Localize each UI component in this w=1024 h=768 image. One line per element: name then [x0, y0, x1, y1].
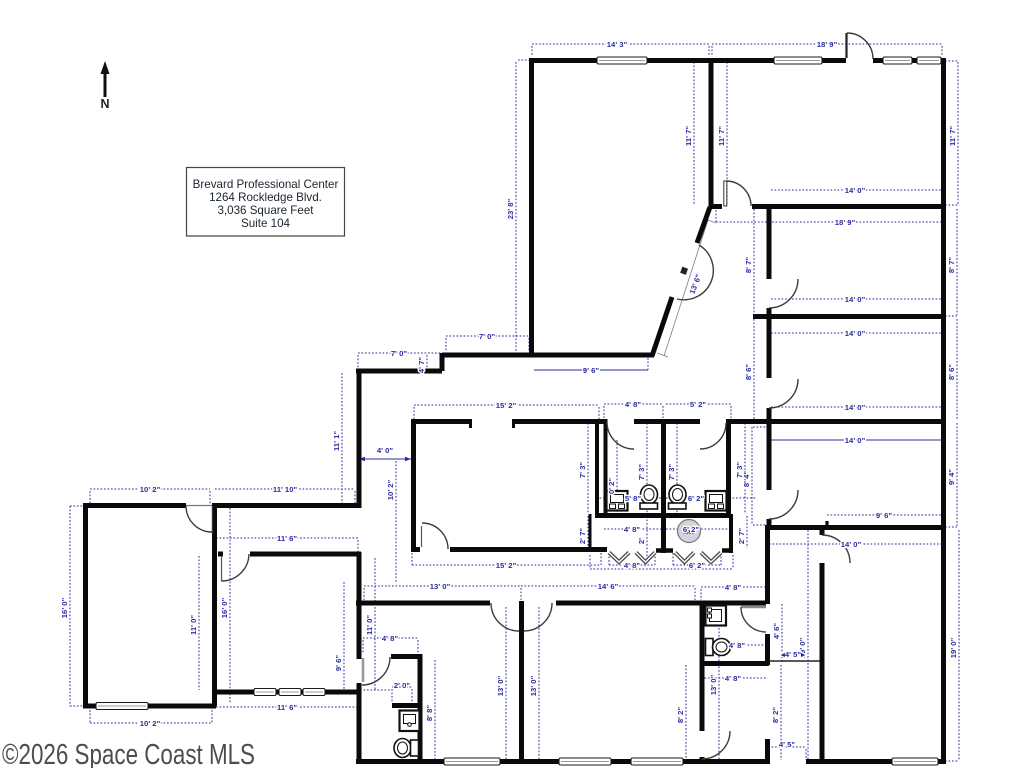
svg-text:Suite 104: Suite 104: [241, 217, 291, 230]
svg-text:14' 0": 14' 0": [845, 186, 866, 195]
svg-text:4' 8": 4' 8": [729, 641, 746, 650]
svg-text:2' 7": 2' 7": [578, 528, 587, 545]
svg-text:Brevard Professional Center: Brevard Professional Center: [193, 178, 339, 191]
svg-text:N: N: [100, 97, 109, 111]
svg-text:23' 8": 23' 8": [506, 198, 515, 219]
svg-text:11' 1": 11' 1": [332, 431, 341, 451]
svg-text:13' 0": 13' 0": [496, 675, 505, 696]
svg-text:8' 7": 8' 7": [947, 257, 956, 274]
svg-text:8' 4": 8' 4": [742, 471, 751, 488]
svg-text:7' 0": 7' 0": [391, 349, 408, 358]
svg-text:8' 8": 8' 8": [425, 705, 434, 722]
svg-text:13' 0": 13' 0": [709, 674, 718, 695]
svg-text:8' 6": 8' 6": [744, 364, 753, 381]
svg-text:14' 0": 14' 0": [845, 329, 866, 338]
svg-text:7' 3": 7' 3": [578, 462, 587, 479]
svg-text:7' 0": 7' 0": [479, 332, 496, 341]
svg-text:14' 6": 14' 6": [598, 582, 619, 591]
svg-text:7' 3": 7' 3": [667, 464, 676, 481]
svg-text:14' 0": 14' 0": [845, 295, 866, 304]
svg-text:6' 2": 6' 2": [689, 561, 706, 570]
svg-text:4' 8": 4' 8": [725, 674, 742, 683]
svg-text:4' 6": 4' 6": [772, 623, 781, 640]
svg-text:8' 2": 8' 2": [676, 707, 685, 724]
svg-text:9' 6": 9' 6": [583, 366, 600, 375]
svg-text:8' 2": 8' 2": [771, 707, 780, 724]
svg-text:11' 0": 11' 0": [189, 615, 198, 635]
svg-text:2' 7": 2' 7": [737, 528, 746, 545]
svg-text:8' 7": 8' 7": [744, 257, 753, 274]
svg-text:10' 2": 10' 2": [140, 485, 161, 494]
svg-text:6' 2": 6' 2": [683, 525, 700, 534]
svg-text:11' 6": 11' 6": [277, 534, 297, 543]
svg-text:4' 8": 4' 8": [382, 634, 399, 643]
svg-text:18' 9": 18' 9": [817, 40, 838, 49]
svg-text:14' 0": 14' 0": [845, 403, 866, 412]
svg-text:3,036 Square Feet: 3,036 Square Feet: [217, 204, 314, 217]
svg-text:16' 0": 16' 0": [220, 597, 229, 618]
svg-text:5' 2": 5' 2": [690, 400, 707, 409]
svg-text:9' 6": 9' 6": [876, 511, 893, 520]
svg-text:2' 0": 2' 0": [394, 681, 411, 690]
svg-text:9' 4": 9' 4": [947, 469, 956, 486]
svg-text:19' 0": 19' 0": [949, 637, 958, 658]
svg-text:4' 8": 4' 8": [624, 561, 641, 570]
svg-text:16' 0": 16' 0": [60, 597, 69, 618]
svg-text:8' 6": 8' 6": [947, 364, 956, 381]
svg-text:4' 7": 4' 7": [417, 357, 426, 374]
svg-text:9' 6": 9' 6": [334, 655, 343, 672]
svg-text:14' 0": 14' 0": [845, 436, 866, 445]
svg-text:7' 3": 7' 3": [637, 464, 646, 481]
svg-text:11' 7": 11' 7": [948, 126, 957, 146]
svg-text:0' 2": 0' 2": [607, 478, 616, 495]
svg-text:13' 0": 13' 0": [529, 675, 538, 696]
svg-text:6' 2": 6' 2": [688, 494, 705, 503]
svg-text:10' 2": 10' 2": [386, 479, 395, 500]
svg-text:1264 Rockledge Blvd.: 1264 Rockledge Blvd.: [209, 191, 322, 204]
svg-text:18' 9": 18' 9": [835, 218, 856, 227]
svg-text:15' 2": 15' 2": [496, 401, 517, 410]
svg-text:10' 2": 10' 2": [140, 719, 161, 728]
svg-text:13' 0": 13' 0": [430, 582, 451, 591]
svg-text:15' 2": 15' 2": [496, 561, 517, 570]
svg-text:©2026 Space Coast MLS: ©2026 Space Coast MLS: [2, 739, 255, 768]
svg-text:4' 5": 4' 5": [779, 740, 796, 749]
svg-text:4' 8": 4' 8": [624, 525, 641, 534]
svg-text:4' 8": 4' 8": [725, 583, 742, 592]
svg-text:14' 3": 14' 3": [607, 40, 628, 49]
svg-text:11' 6": 11' 6": [277, 703, 297, 712]
svg-text:11' 7": 11' 7": [717, 126, 726, 146]
svg-text:2': 2': [637, 538, 646, 544]
svg-text:11' 7": 11' 7": [684, 126, 693, 146]
svg-text:◂4' 5"▸: ◂4' 5"▸: [780, 650, 806, 659]
svg-text:4' 8": 4' 8": [625, 400, 642, 409]
svg-text:11' 0": 11' 0": [365, 615, 374, 635]
svg-text:4' 0": 4' 0": [377, 446, 394, 455]
svg-text:14' 0": 14' 0": [841, 540, 862, 549]
svg-text:5' 8": 5' 8": [625, 494, 642, 503]
svg-text:11' 10": 11' 10": [273, 485, 298, 494]
